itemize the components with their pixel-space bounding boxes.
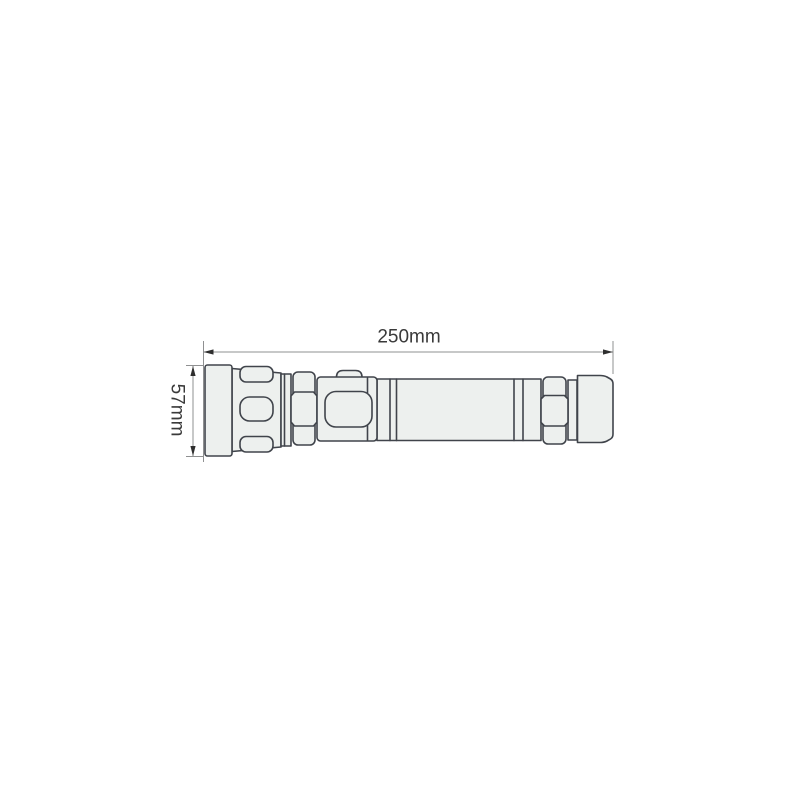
flashlight-technical-drawing: 250mm 57mm [0,0,800,800]
arrow-down-icon [190,446,195,456]
rear-neck-shape [568,380,577,440]
front-knurl-band [291,392,317,426]
drawing-canvas [0,0,800,800]
head-grip-cutout-bottom [240,437,273,453]
arrow-right-icon [603,349,613,354]
tail-cap-shape [578,376,614,443]
battery-tube-shape [377,379,541,441]
rear-knurl-band [541,396,568,427]
flashlight-body [205,365,613,456]
switch-panel-shape [325,392,372,428]
length-dimension-label: 250mm [377,328,440,347]
arrow-left-icon [204,349,214,354]
front-bezel-shape [205,365,232,456]
front-neck-shape [281,374,291,446]
height-dimension-label: 57mm [168,384,187,437]
head-grip-cutout-middle [240,397,273,421]
arrow-up-icon [190,366,195,376]
head-grip-cutout-top [240,367,273,383]
